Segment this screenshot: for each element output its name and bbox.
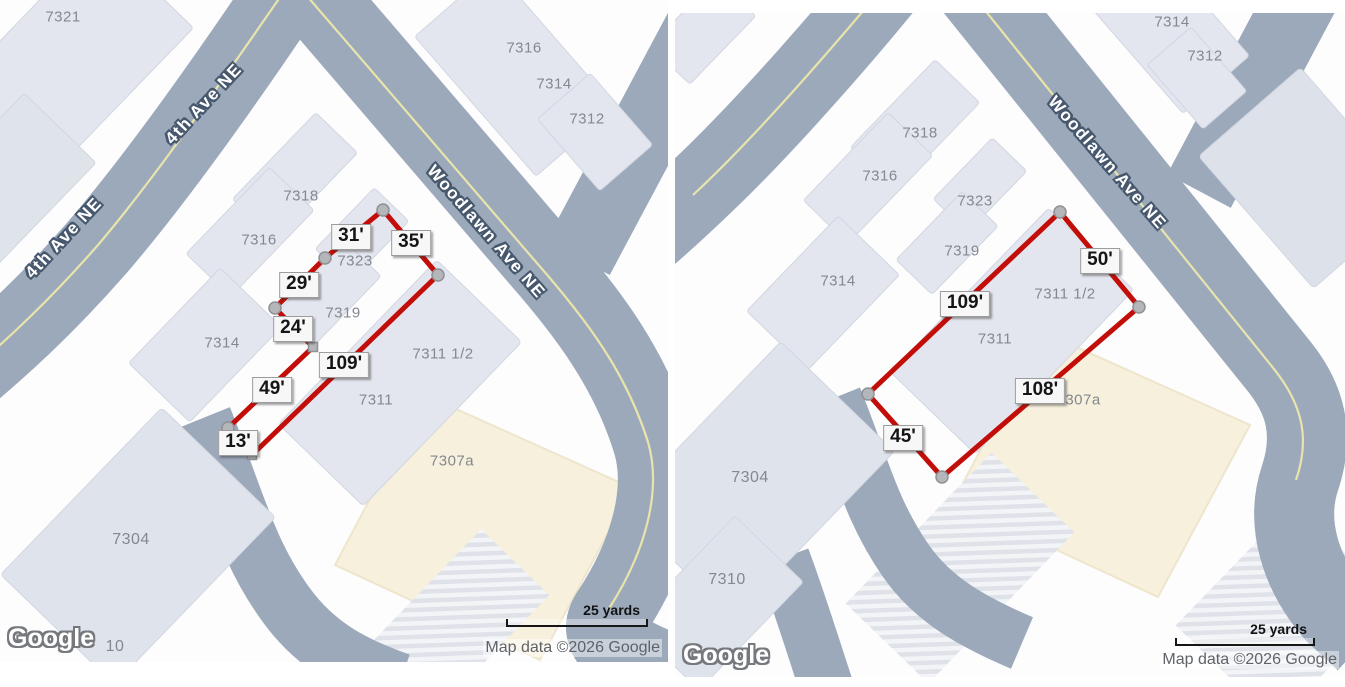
measurement-label[interactable]: 50' [1080, 248, 1120, 274]
scale-bar: 25 yards [506, 602, 648, 627]
parcel-label: 7316 [241, 232, 276, 249]
parcel-label: 7312 [1187, 48, 1222, 65]
measurement-label[interactable]: 35' [391, 230, 431, 256]
parcel-label: 7310 [708, 571, 746, 589]
vertex-handle [936, 471, 948, 483]
parcel-label: 7311 [359, 392, 393, 409]
parcel-label: 7318 [283, 188, 318, 205]
parcel-label: 307a [1065, 392, 1100, 409]
map-left[interactable]: 4th Ave NE 4th Ave NE Woodlawn Ave NE 73… [0, 0, 668, 662]
scale-label: 25 yards [506, 602, 648, 618]
parcel-label: 10 [106, 638, 125, 656]
measurement-label[interactable]: 24' [273, 316, 313, 342]
parcel-label: 7316 [506, 40, 541, 57]
parcel-label: 7323 [957, 193, 992, 210]
measurement-label[interactable]: 29' [279, 272, 319, 298]
map-right[interactable]: Woodlawn Ave NE 7314 7312 7318 7316 7323… [675, 13, 1345, 677]
vertex-handle [309, 343, 318, 352]
measurement-label[interactable]: 49' [252, 377, 292, 403]
parcel-label: 7319 [325, 305, 360, 322]
measurement-label[interactable]: 45' [883, 425, 923, 451]
google-logo[interactable]: Google [683, 641, 769, 670]
map-attribution: Map data ©2026 Google [1160, 651, 1339, 669]
scale-bar: 25 yards [1175, 621, 1315, 646]
google-logo[interactable]: Google [8, 624, 94, 653]
parcel-label: 7316 [862, 168, 897, 185]
vertex-handle [269, 302, 281, 314]
parcel-label: 7314 [1154, 14, 1189, 31]
parcel-label: 7318 [902, 125, 937, 142]
measurement-label[interactable]: 109' [940, 291, 990, 317]
parcel-label: 7323 [337, 253, 372, 270]
parcel-label: 7311 [978, 331, 1012, 348]
vertex-handle [377, 204, 389, 216]
parcel-label: 7314 [820, 273, 855, 290]
vertex-handle [319, 252, 331, 264]
measurement-label[interactable]: 109' [319, 352, 369, 378]
vertex-handle [1133, 301, 1145, 313]
vertex-handle [862, 388, 874, 400]
vertex-handle [1054, 206, 1066, 218]
parcel-label: 7311 1/2 [1034, 286, 1095, 303]
map-attribution: Map data ©2026 Google [483, 639, 662, 657]
parcel-label: 7307a [430, 453, 474, 470]
map-left-canvas [0, 0, 668, 662]
parcel-label: 7304 [112, 531, 150, 549]
parcel-label: 7312 [569, 111, 604, 128]
scale-label: 25 yards [1175, 621, 1315, 637]
parcel-label: 7304 [731, 469, 769, 487]
scale-bar-rule [1175, 638, 1315, 646]
parcel-label: 7311 1/2 [412, 346, 473, 363]
vertex-handle [432, 269, 444, 281]
measurement-label[interactable]: 13' [218, 430, 258, 456]
screenshot: 4th Ave NE 4th Ave NE Woodlawn Ave NE 73… [0, 0, 1345, 687]
measurement-label[interactable]: 108' [1015, 378, 1065, 404]
measurement-label[interactable]: 31' [331, 224, 371, 250]
scale-bar-rule [506, 619, 648, 627]
parcel-label: 7321 [45, 9, 80, 26]
parcel-label: 7314 [204, 335, 239, 352]
parcel-label: 7319 [944, 243, 979, 260]
parcel-label: 7314 [536, 76, 571, 93]
